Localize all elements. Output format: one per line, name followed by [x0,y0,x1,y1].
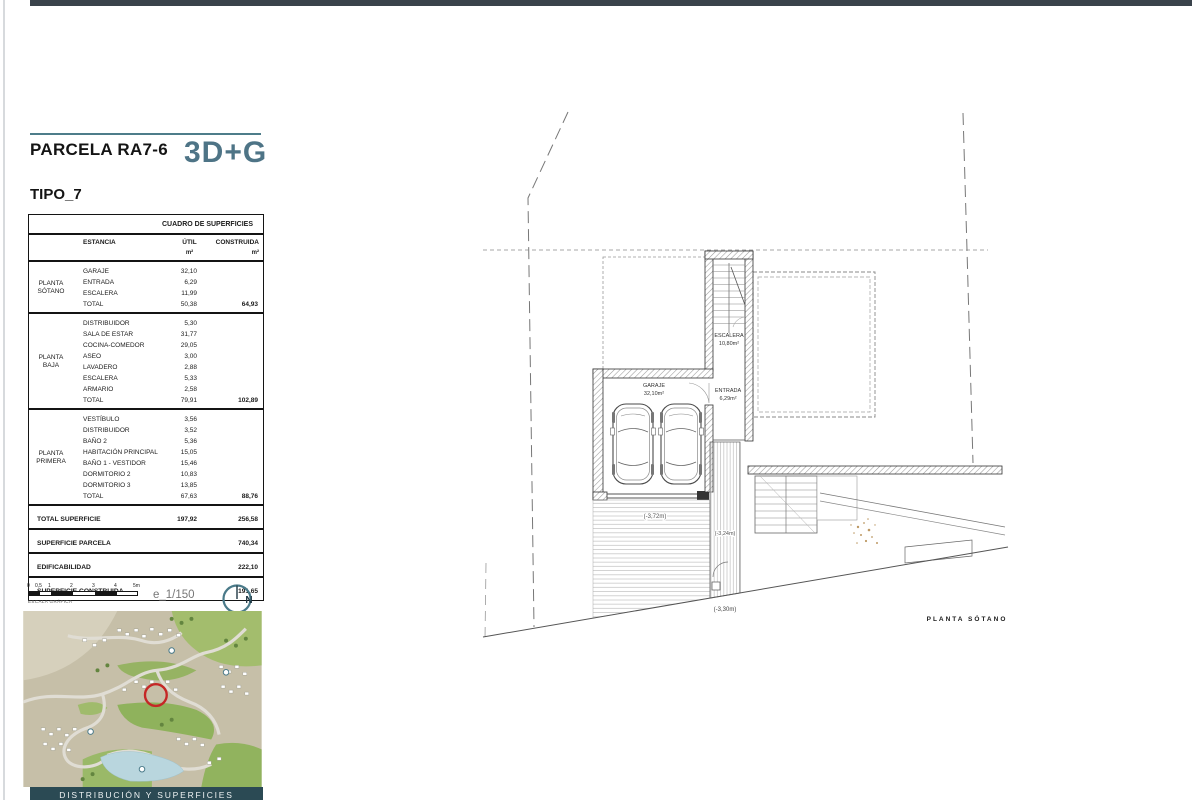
scale-tick: 0,5 [35,583,42,589]
col-util: ÚTIL [166,237,213,248]
floor-label: PLANTA SÓTANO [29,280,73,296]
table-row: ENTRADA 6,29 [73,277,263,288]
garaje-label: GARAJE [643,383,665,389]
parcel-title: PARCELA RA7-6 [30,140,168,160]
scale-tick: 3 [92,583,95,589]
scale-tick: 1 [48,583,51,589]
floor-label: PLANTA BAJA [29,354,73,370]
scale-tick: 4 [114,583,117,589]
summary-row: TOTAL SUPERFICIE 197,92 256,58 [29,506,263,530]
floor-label: PLANTA PRIMERA [29,450,73,466]
top-bar [30,0,1192,6]
table-row: DORMITORIO 3 13,85 [73,480,263,491]
unit-construida: m² [213,248,263,259]
type-title: TIPO_7 [30,186,82,203]
street-level-label: (-3,30m) [714,607,737,613]
footer-label: DISTRIBUCIÓN Y SUPERFICIES [59,790,233,800]
table-row: BAÑO 2 5,36 [73,436,263,447]
section-planta-baja: PLANTA BAJA DISTRIBUIDOR 5,30 SALA DE ES… [29,314,263,410]
scale-tick: 0 [27,583,30,589]
brand-logo: 3D+G [184,136,267,170]
north-label: N [245,595,252,606]
table-row: TOTAL 50,38 64,93 [73,299,263,310]
site-map-image [22,611,263,787]
table-row: COCINA-COMEDOR 29,05 [73,340,263,351]
scale-caption: ESCALA GRÁFICA [28,599,72,604]
page-edge-line [3,0,5,800]
escalera-area-label: 10,80m² [719,341,739,347]
scale-bar-segments [28,591,138,596]
table-row: LAVADERO 2,88 [73,362,263,373]
garaje-area-label: 32,10m² [644,391,664,397]
scale-tick: 2 [70,583,73,589]
table-header: ESTANCIA ÚTIL CONSTRUIDA m² m² [29,235,263,262]
vegetation-icon [850,518,878,544]
table-row: VESTÍBULO 3,56 [73,414,263,425]
driveway-level-label: (-3,72m) [644,514,667,520]
summary-row: EDIFICABILIDAD 222,10 [29,554,263,578]
table-row: BAÑO 1 - VESTIDOR 15,46 [73,458,263,469]
section-planta-primera: PLANTA PRIMERA VESTÍBULO 3,56 DISTRIBUID… [29,410,263,506]
table-title: CUADRO DE SUPERFICIES [29,215,263,235]
table-row: ESCALERA 11,99 [73,288,263,299]
table-row: ESCALERA 5,33 [73,373,263,384]
table-row: ARMARIO 2,58 [73,384,263,395]
table-row: DISTRIBUIDOR 5,30 [73,318,263,329]
table-row: SALA DE ESTAR 31,77 [73,329,263,340]
table-row: DISTRIBUIDOR 3,52 [73,425,263,436]
entry-level-label: (-3,24m) [715,531,736,537]
scale-tick: 5m [133,583,140,589]
table-row: DORMITORIO 2 10,83 [73,469,263,480]
table-row: TOTAL 67,63 88,76 [73,491,263,502]
table-row: ASEO 3,00 [73,351,263,362]
col-estancia: ESTANCIA [73,237,166,248]
footer-bar: DISTRIBUCIÓN Y SUPERFICIES [30,787,263,800]
table-row: HABITACIÓN PRINCIPAL 15,05 [73,447,263,458]
entrance-hall: ENTRADA 6,29m² [713,388,745,440]
table-row: TOTAL 79,91 102,89 [73,395,263,406]
table-row: GARAJE 32,10 [73,266,263,277]
retaining-wall-and-terrain [483,466,1008,637]
scale-ratio: e_1/150 [153,589,195,601]
entrada-area-label: 6,29m² [719,396,736,402]
scale-bar: ESCALA GRÁFICA 00,512345m [28,583,140,609]
site-map [22,611,263,787]
entry-path: (-3,24m) [710,442,740,598]
col-construida: CONSTRUIDA [213,237,263,248]
surfaces-table: CUADRO DE SUPERFICIES ESTANCIA ÚTIL CONS… [28,214,264,601]
plan-sheet: PARCELA RA7-6 3D+G TIPO_7 CUADRO DE SUPE… [0,0,1200,800]
plan-caption: PLANTA SÓTANO [927,614,1008,623]
summary-row: SUPERFICIE PARCELA 740,34 [29,530,263,554]
unit-util: m² [166,248,213,259]
entrada-label: ENTRADA [715,388,742,394]
header-rule [30,133,261,135]
driveway: (-3,72m) [593,500,710,618]
escalera-label: ESCALERA [714,333,744,339]
garage: GARAJE 32,10m² [593,369,713,500]
section-planta-sotano: PLANTA SÓTANO GARAJE 32,10 ENTRADA 6,29 [29,262,263,314]
floor-plan: ESCALERA 10,80m² GARAJE 32,10m² [470,95,1015,645]
